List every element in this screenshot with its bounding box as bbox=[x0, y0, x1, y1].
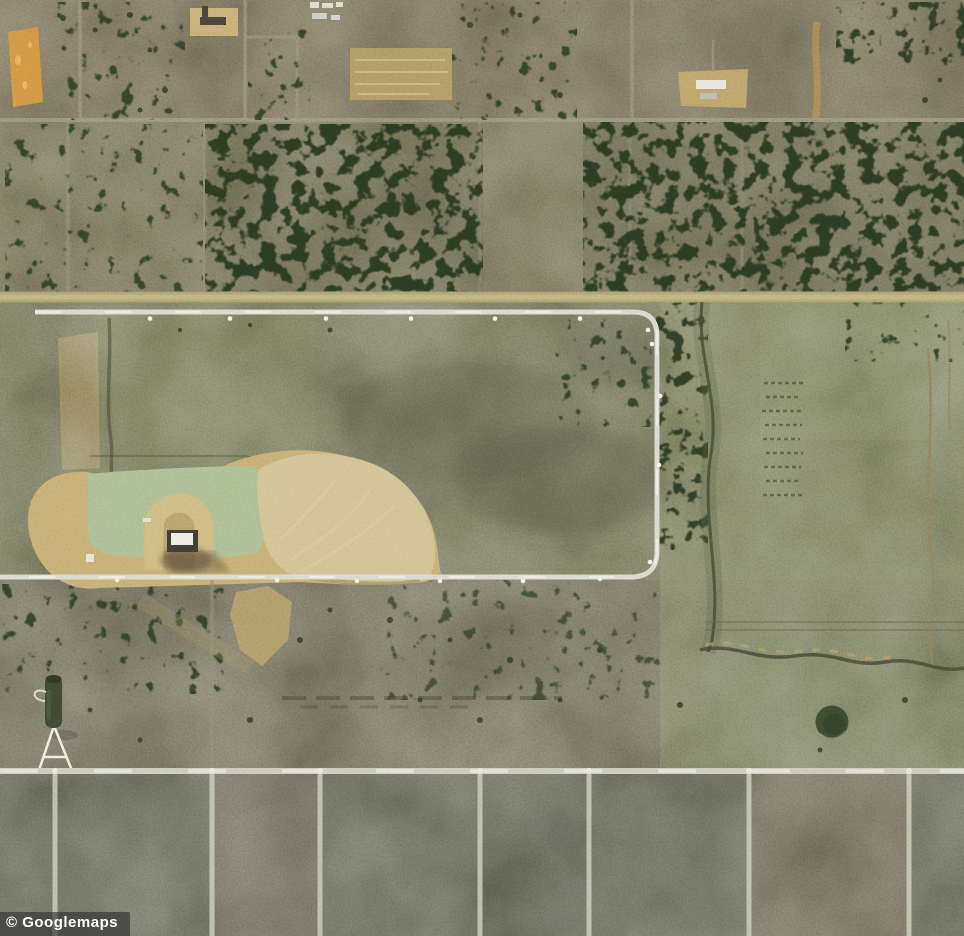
map-viewport[interactable]: © Googlemaps bbox=[0, 0, 964, 936]
film-grain bbox=[0, 0, 964, 936]
watermark-text: © Googlemaps bbox=[6, 914, 118, 931]
watermark: © Googlemaps bbox=[0, 912, 130, 936]
satellite-image bbox=[0, 0, 964, 936]
